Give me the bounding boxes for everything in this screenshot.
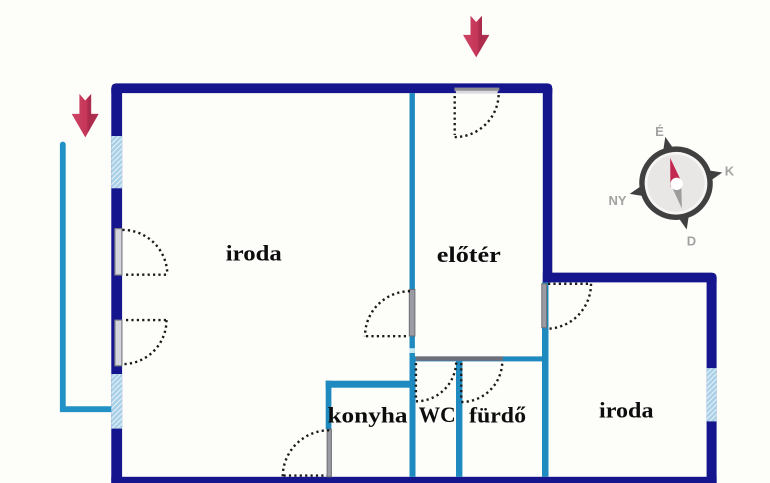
svg-text:WC: WC xyxy=(419,402,456,427)
svg-text:iroda: iroda xyxy=(599,398,654,423)
svg-text:fürdő: fürdő xyxy=(469,403,526,428)
svg-text:D: D xyxy=(687,233,696,248)
svg-text:NY: NY xyxy=(608,193,626,208)
svg-text:iroda: iroda xyxy=(226,241,282,266)
svg-text:konyha: konyha xyxy=(328,403,408,428)
svg-text:É: É xyxy=(655,124,664,139)
svg-text:előtér: előtér xyxy=(437,242,501,267)
svg-text:K: K xyxy=(725,163,735,178)
